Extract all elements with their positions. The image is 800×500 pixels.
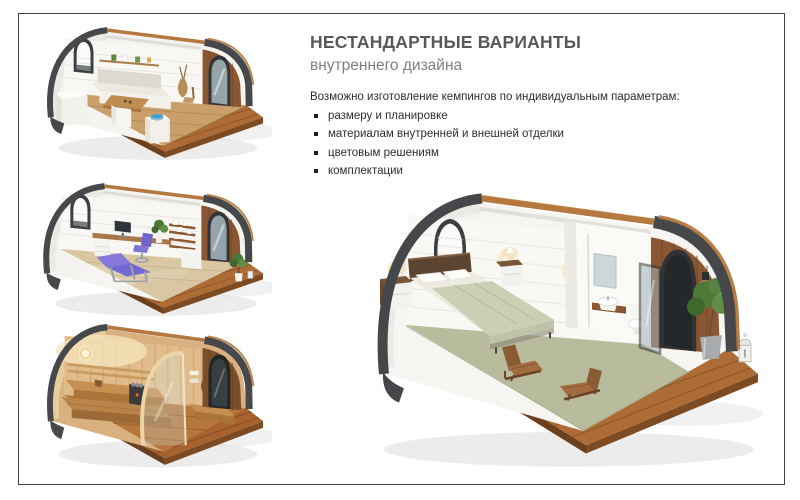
kitchen-dining-pod-image [34, 18, 272, 170]
bathroom [564, 221, 650, 343]
bedroom-pod-image [354, 174, 774, 480]
bullet-text: материалам внутренней и внешней отделки [328, 128, 564, 142]
intro-paragraph: Возможно изготовление кемпингов по индив… [310, 90, 758, 105]
bullet-square-icon [314, 132, 318, 136]
lantern [739, 333, 751, 362]
text-block: НЕСТАНДАРТНЫЕ ВАРИАНТЫ внутреннего дизай… [310, 32, 758, 183]
list-item: цветовым решениям [310, 147, 758, 161]
page-subtitle: внутреннего дизайна [310, 56, 758, 75]
bullet-square-icon [314, 151, 318, 155]
bullet-square-icon [314, 169, 318, 173]
office-massage-pod-image [30, 174, 272, 326]
sauna-pod-image [34, 314, 272, 478]
bullet-list: размеру и планировке материалам внутренн… [310, 110, 758, 179]
list-item: размеру и планировке [310, 110, 758, 124]
ceiling-light [78, 345, 94, 362]
list-item: материалам внутренней и внешней отделки [310, 128, 758, 142]
bullet-text: цветовым решениям [328, 147, 439, 161]
page-title: НЕСТАНДАРТНЫЕ ВАРИАНТЫ [310, 32, 758, 54]
bullet-text: размеру и планировке [328, 110, 448, 124]
bullet-square-icon [314, 114, 318, 118]
open-glass-door [640, 264, 660, 354]
slide: НЕСТАНДАРТНЫЕ ВАРИАНТЫ внутреннего дизай… [0, 0, 800, 500]
